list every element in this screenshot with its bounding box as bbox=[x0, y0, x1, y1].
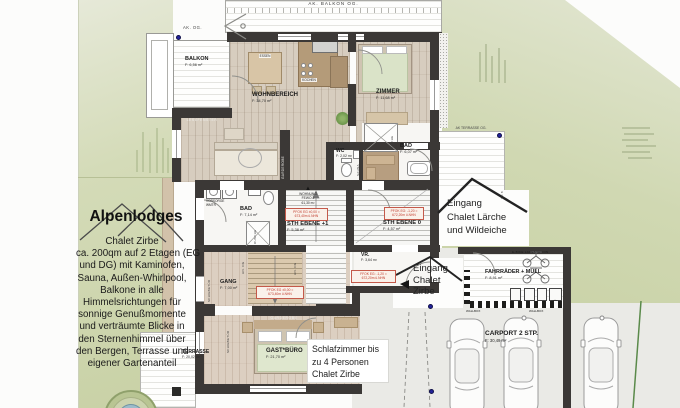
property-boundary-line bbox=[633, 301, 641, 408]
floor-plan-canvas: MÜLL LESEFENSTER GARDEROBE bbox=[0, 0, 680, 408]
gast-buero-area: F: 21,70 m² bbox=[266, 355, 303, 360]
info-line: Himmelsrichtungen für bbox=[76, 297, 188, 309]
survey-dot bbox=[497, 133, 502, 138]
stairs-hn-og-label: HN. OG bbox=[293, 255, 297, 275]
zirbe-l3: Zirbe bbox=[413, 286, 448, 298]
garderobe-og-label: GARDEROBE bbox=[281, 133, 285, 179]
ebike-label: E-BIKE LADESTATION bbox=[512, 251, 548, 255]
fahrraeder-room-label: FAHRRÄDER + MÜLL F: 8,91 m² bbox=[485, 269, 541, 280]
zimmer-area: F: 11,68 m² bbox=[376, 96, 400, 101]
fahrraeder-area: F: 8,91 m² bbox=[485, 276, 541, 281]
wallbox-text-1: WALLBOX bbox=[466, 309, 480, 313]
note-l3: Chalet Zirbe bbox=[312, 368, 388, 381]
vorsorge-l2: WMTR bbox=[206, 203, 224, 207]
wohnbereich-name: WOHNBEREICH bbox=[252, 92, 298, 99]
pfok-a-l2: 673,40m ü.NHN bbox=[288, 214, 325, 218]
sleeping-note-box: Schlafzimmer bis zu 4 Personen Chalet Zi… bbox=[307, 339, 389, 383]
note-l2: zu 4 Personen bbox=[312, 356, 388, 369]
info-line: eigener Gartenanteil bbox=[76, 358, 188, 370]
balkon-area: F: 6,56 m² bbox=[185, 63, 209, 68]
info-line: Balkone in alle bbox=[76, 285, 188, 297]
vr-area: F: 3,64 m² bbox=[361, 258, 377, 262]
ak-balkon-og-text: AK. BALKON OG. bbox=[308, 1, 358, 6]
hn-og-text-1: HN. OG bbox=[241, 262, 245, 274]
sth-plus1-area: F: 5,38 m² bbox=[287, 228, 328, 233]
entrance-laerche-label: Eingang Chalet Lärche und Wildeiche bbox=[447, 197, 507, 238]
zimmer-name: ZIMMER bbox=[376, 89, 400, 96]
dusche-og-text: DUSCHE bbox=[390, 136, 394, 150]
carport-area: F: 30,49 m² bbox=[485, 338, 538, 343]
info-description: Chalet Zirbe ca. 200qm auf 2 Etagen (EG … bbox=[76, 236, 188, 370]
survey-dot bbox=[428, 304, 433, 309]
info-line: ca. 200qm auf 2 Etagen (EG bbox=[76, 248, 188, 260]
carport-room-label: CARPORT 2 STP. F: 30,49 m² bbox=[485, 330, 538, 343]
sth-plus1-name: STH EBENE +1 bbox=[287, 221, 328, 228]
stairs-hn-og-label: HN. OG bbox=[241, 254, 245, 274]
entrance-arrow-icon bbox=[400, 280, 409, 289]
gable-chevron-icon bbox=[225, 14, 246, 39]
kochen-label: KOCHEN bbox=[298, 79, 320, 83]
vorsorge-label: VORSORGE WMTR bbox=[206, 199, 224, 207]
schiebetuer-text-1: SCHIEBETÜR bbox=[207, 280, 211, 302]
grass-tufts-left bbox=[137, 128, 168, 173]
dusche-og-label: DUSCHE bbox=[390, 126, 394, 150]
zimmer-room-label: ZIMMER F: 11,68 m² bbox=[376, 89, 400, 101]
ak-og-text: AK. OG. bbox=[183, 25, 202, 30]
gast-buero-room-label: GAST*BÜRO F: 21,70 m² bbox=[266, 348, 303, 360]
gast-buero-name: GAST*BÜRO bbox=[266, 348, 303, 355]
fahrraeder-name: FAHRRÄDER + MÜLL bbox=[485, 269, 541, 276]
ebike-text: E-BIKE LADESTATION bbox=[512, 250, 548, 254]
page-title: Alpenlodges bbox=[86, 208, 186, 227]
level-note-pfok-a: PFOK EG ±0,00 = 673,40m ü.NHN bbox=[285, 208, 328, 221]
kochen-text: KOCHEN bbox=[301, 78, 317, 82]
balkon-name: BALKON bbox=[185, 56, 209, 63]
survey-dot bbox=[429, 389, 434, 394]
pfok-b-l2: 672,20m ü.NHN bbox=[387, 213, 421, 217]
sauna-text: SAUNA bbox=[356, 164, 360, 176]
gang-name: GANG bbox=[220, 279, 237, 286]
schiebetuer-label: SCHIEBETÜR bbox=[226, 325, 230, 353]
wc-area: F: 2,02 m² bbox=[336, 154, 352, 158]
page-title-text: Alpenlodges bbox=[89, 208, 182, 225]
apartment-l3: 61,30 m² bbox=[290, 201, 326, 205]
level-note-pfok-b: PFOK EG: -1,20 = 672,20m ü.NHN bbox=[384, 207, 424, 220]
dusche-eg-text: DUSCHE bbox=[253, 230, 257, 244]
pfok-c-l2: 673,40m ü.NHN bbox=[259, 292, 301, 296]
schiebetuer-label: SCHIEBETÜR bbox=[207, 276, 211, 302]
sauna-label: SAUNA bbox=[356, 150, 360, 176]
wohnbereich-room-label: WOHNBEREICH F: 34,70 m² bbox=[252, 92, 298, 104]
hn-og-text-2: HN. OG bbox=[293, 263, 297, 275]
ak-og-label: AK. OG. bbox=[183, 25, 202, 30]
ak-terrasse-og-text: AK TERRASSE OG. bbox=[456, 126, 487, 130]
info-line: sonnige Genußmomente bbox=[76, 309, 188, 321]
info-line: und verträumte Blicke in bbox=[76, 321, 188, 333]
bad-og-name: BAD bbox=[400, 143, 417, 150]
wohnbereich-area: F: 34,70 m² bbox=[252, 99, 298, 104]
bad-eg-area: F: 7,14 m² bbox=[240, 213, 257, 218]
vr-room-label: VR. F: 3,64 m² bbox=[361, 252, 377, 262]
wallbox-label: WALLBOX bbox=[529, 310, 543, 314]
schiebetuer-text-2: SCHIEBETÜR bbox=[226, 331, 230, 353]
ffok-l2: 672,20m ü.NHN bbox=[354, 276, 393, 280]
gang-room-label: GANG F: 7,00 m² bbox=[220, 279, 237, 290]
zirbe-l1: Eingang bbox=[413, 263, 448, 275]
apartment-label: ▲ WOHNUNG FEWO 2 61,30 m² bbox=[290, 186, 326, 205]
bad-og-room-label: BAD F: 6,07 m² bbox=[400, 143, 417, 154]
wallbox-label: WALLBOX bbox=[466, 310, 480, 314]
gang-area: F: 7,00 m² bbox=[220, 286, 237, 291]
dusche-eg-label: DUSCHE bbox=[253, 224, 257, 244]
info-line: und DG) mit Kaminofen, bbox=[76, 260, 188, 272]
level-note-ffok: FFOK EG: -1,20 = 672,20m ü.NHN bbox=[351, 270, 396, 283]
ak-balkon-og-label: AK. BALKON OG. bbox=[225, 1, 442, 6]
garderobe-og-text: GARDEROBE bbox=[281, 156, 285, 179]
survey-dot bbox=[176, 35, 181, 40]
note-l1: Schlafzimmer bis bbox=[312, 343, 388, 356]
info-line: Chalet Zirbe bbox=[76, 236, 188, 248]
sth-0-area: F: 4,57 m² bbox=[383, 227, 421, 232]
sth-0-label: STH EBENE 0 F: 4,57 m² bbox=[383, 220, 421, 232]
sleeping-note-text: Schlafzimmer bis zu 4 Personen Chalet Zi… bbox=[312, 343, 388, 381]
info-line: den Sternenhimmel über bbox=[76, 334, 188, 346]
laerche-l1: Eingang bbox=[447, 197, 507, 211]
entrance-zirbe-label: Eingang Chalet Zirbe bbox=[413, 263, 448, 298]
balkon-room-label: BALKON F: 6,56 m² bbox=[185, 56, 209, 67]
sth-0-name: STH EBENE 0 bbox=[383, 220, 421, 227]
grass-tufts-right bbox=[480, 44, 656, 158]
ak-terrasse-og-label: AK TERRASSE OG. bbox=[437, 126, 505, 130]
walkway-dashed-path bbox=[404, 312, 430, 407]
wc-room-label: WC F: 2,02 m² bbox=[336, 148, 352, 158]
door-arcs bbox=[204, 50, 495, 338]
bad-eg-room-label: BAD F: 7,14 m² bbox=[240, 206, 257, 217]
zirbe-l2: Chalet bbox=[413, 275, 448, 287]
laerche-l2: Chalet Lärche bbox=[447, 211, 507, 225]
wallbox-text-2: WALLBOX bbox=[529, 309, 543, 313]
bad-eg-name: BAD bbox=[240, 206, 257, 213]
sth-plus1-label: STH EBENE +1 F: 5,38 m² bbox=[287, 221, 328, 233]
essen-label: ESSEN bbox=[252, 55, 278, 59]
info-line: den Bergen, Terrasse und bbox=[76, 346, 188, 358]
bad-og-area: F: 6,07 m² bbox=[400, 150, 417, 155]
carport-name: CARPORT 2 STP. bbox=[485, 330, 538, 338]
info-line: Sauna, Außen-Whirlpool, bbox=[76, 273, 188, 285]
essen-text: ESSEN bbox=[259, 54, 272, 58]
level-note-pfok-c: PFOK EG ±0,00 = 673,40m ü.NHN bbox=[256, 286, 304, 299]
laerche-l3: und Wildeiche bbox=[447, 224, 507, 238]
